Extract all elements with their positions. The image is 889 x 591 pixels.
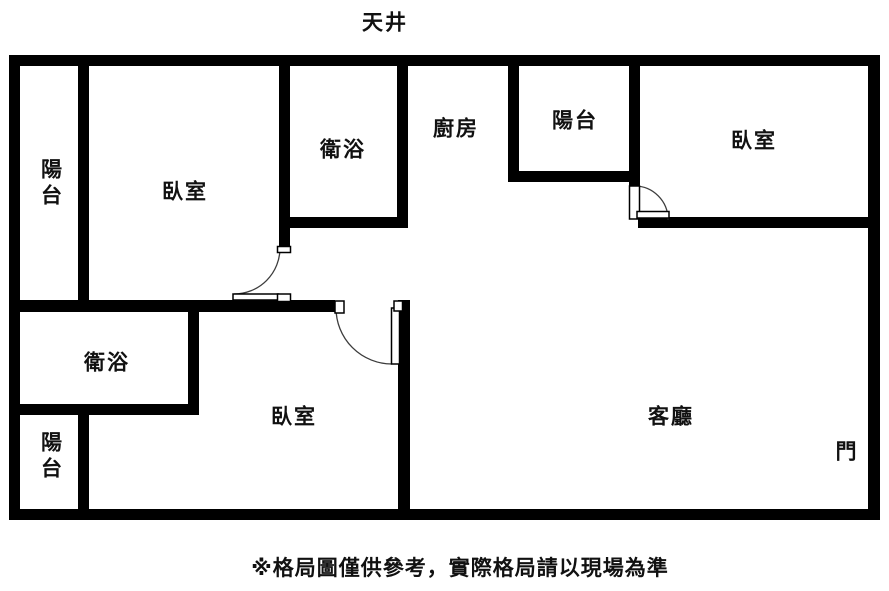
disclaimer-text: ※格局圖僅供參考，實際格局請以現場為準 [251,552,668,582]
wall-outer-right [868,55,880,520]
door-bedroom-bottom [335,301,403,364]
wall-bathroom-top-right [397,55,408,228]
label-bathroom-top: 衛浴 [320,140,366,161]
floor-plan-canvas: 天井 陽台 臥室 衛浴 廚房 陽台 臥室 衛浴 陽台 臥室 客廳 門 [0,0,889,591]
wall-outer-top [9,55,880,66]
label-balcony-top-left: 陽台 [40,158,61,210]
wall-balcony-bl-divider [78,404,89,520]
wall-bathroom-top-bottom [279,217,408,228]
label-bedroom-top-left: 臥室 [162,182,208,203]
door-bedroom-top-left [233,247,291,302]
wall-bathroom-bl-bottom [9,404,199,415]
label-bedroom-top-right: 臥室 [731,131,777,152]
wall-bedroom-tr-bottom [638,217,880,228]
wall-outer-bottom [9,509,880,520]
door-bedroom-right [630,186,670,220]
door-arc-bedroom-bottom [336,308,392,364]
label-balcony-top-right: 陽台 [552,111,598,132]
floor-plan-image: 天井 陽台 臥室 衛浴 廚房 陽台 臥室 衛浴 陽台 臥室 客廳 門 ※格局圖僅… [0,0,889,591]
door-jamb-bedroom-bottom-left [335,301,344,313]
wall-bathroom-bl-right [188,300,199,415]
label-bedroom-bottom: 臥室 [271,407,317,428]
wall-outer-left [9,55,20,520]
wall-living-divider [398,300,410,520]
wall-balcony-tr-bottom [508,171,640,182]
door-arc-bedroom-right [635,186,669,220]
label-skylight: 天井 [362,13,408,34]
wall-mid-horizontal [9,300,335,312]
wall-balcony-tl-divider [78,55,89,312]
wall-balcony-tr-left [508,55,519,182]
label-kitchen: 廚房 [433,119,479,140]
door-jamb-bedroom-top-left-upper [278,247,291,253]
label-living-room: 客廳 [648,407,694,428]
door-swings-layer [0,0,889,591]
label-entrance-door: 門 [836,442,857,463]
label-balcony-bottom-left: 陽台 [40,431,61,483]
door-arc-bedroom-top-left [234,248,280,294]
wall-balcony-tr-right [629,55,640,186]
label-bathroom-bottom: 衛浴 [84,353,130,374]
door-leaf-bedroom-right [630,186,640,219]
